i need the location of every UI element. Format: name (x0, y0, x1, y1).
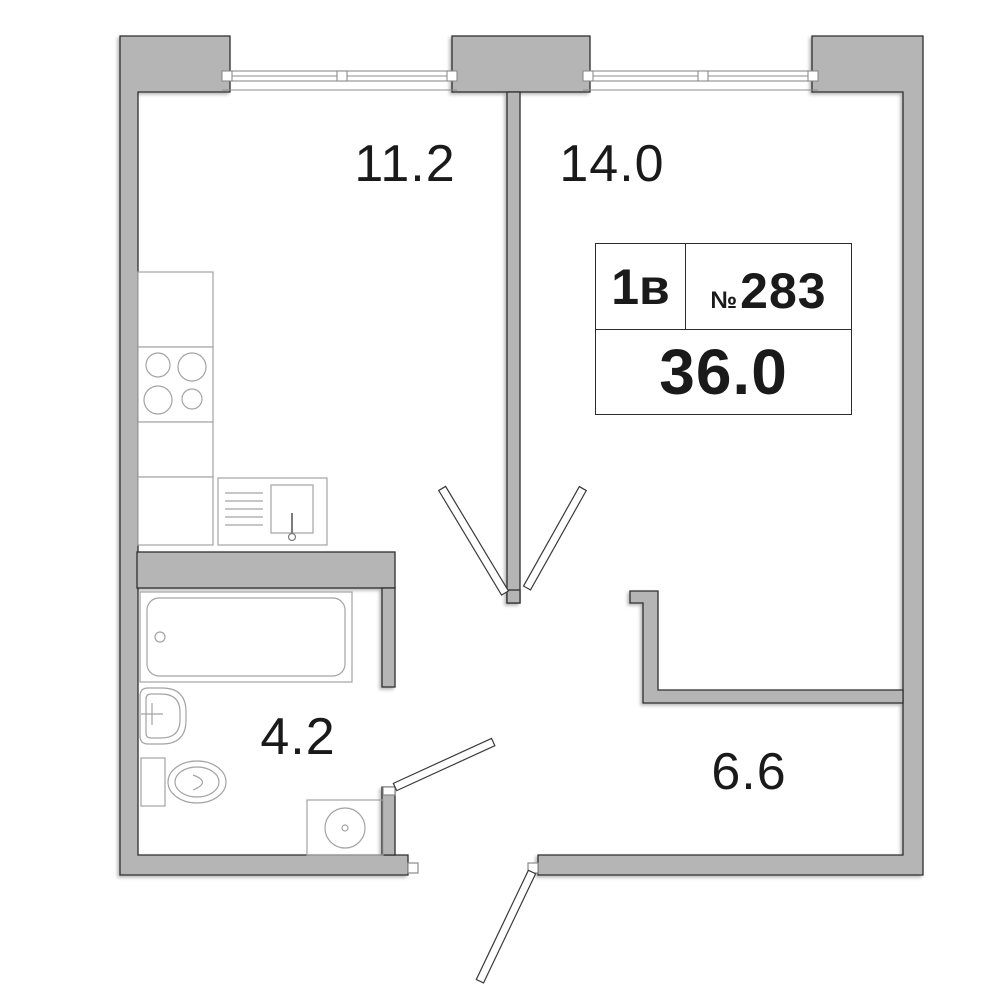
total-area-label: 36.0 (596, 330, 851, 414)
wall-kitchen-room-divider (507, 92, 520, 603)
kitchen-cabinet (138, 477, 213, 545)
kitchen-window-end-block (222, 71, 232, 81)
wall-room-hallway-L (630, 591, 903, 703)
flat-type-label: 1в (596, 244, 686, 329)
kitchen-window-end-block (447, 71, 457, 81)
living-room-window-end-block (808, 71, 818, 81)
info-box-top-row: 1в № 283 (596, 244, 851, 330)
kitchen-cabinet (138, 422, 213, 477)
floor-plan-drawing (0, 0, 1000, 1000)
apartment-info-box: 1в № 283 36.0 (595, 243, 852, 415)
walls (120, 36, 923, 875)
washbasin (140, 688, 186, 744)
bathroom-area-label: 4.2 (260, 707, 335, 767)
wall-bathroom-right-lower (382, 787, 395, 855)
hallway-area-label: 6.6 (711, 742, 786, 802)
entry-door-leaf (476, 870, 535, 983)
floor-plan: 11.2 14.0 4.2 6.6 1в № 283 36.0 (0, 0, 1000, 1000)
washing-machine-center (342, 825, 348, 831)
washing-machine (307, 800, 383, 855)
living-room-window-end-block (583, 71, 593, 81)
wall-top-center-pillar (452, 36, 590, 92)
kitchen-sink-unit (218, 478, 327, 545)
toilet-bowl-inner (175, 767, 219, 797)
kitchen-counter (138, 272, 213, 545)
apartment-number: 283 (740, 262, 826, 320)
bathroom-door-leaf (393, 738, 495, 790)
kitchen-window (222, 71, 457, 90)
wall-divider-end-cap (507, 590, 520, 603)
bathtub-outer (140, 592, 352, 682)
toilet-flush-mark (193, 775, 203, 790)
wall-bathroom-right-upper (382, 588, 395, 687)
kitchen-area-label: 11.2 (354, 134, 455, 194)
washbasin-inner (146, 694, 180, 738)
toilet-tank (141, 758, 165, 806)
kitchen-cabinet (138, 272, 213, 347)
toilet (141, 758, 226, 806)
kitchen-window-mullion (337, 71, 347, 81)
living-room-window-mullion (698, 71, 708, 81)
living-room-window (583, 71, 818, 90)
apartment-number-cell: № 283 (686, 244, 851, 329)
wall-bathroom-top (137, 552, 395, 588)
living-room-area-label: 14.0 (559, 134, 664, 194)
entry-door-jamb-left (408, 863, 418, 873)
bathroom-door-jamb (383, 787, 395, 795)
living-room-door-leaf (524, 487, 587, 590)
kitchen-door-leaf (439, 486, 509, 595)
bathtub (140, 592, 352, 682)
washing-machine-drum (325, 808, 365, 848)
number-sign: № (710, 287, 737, 315)
